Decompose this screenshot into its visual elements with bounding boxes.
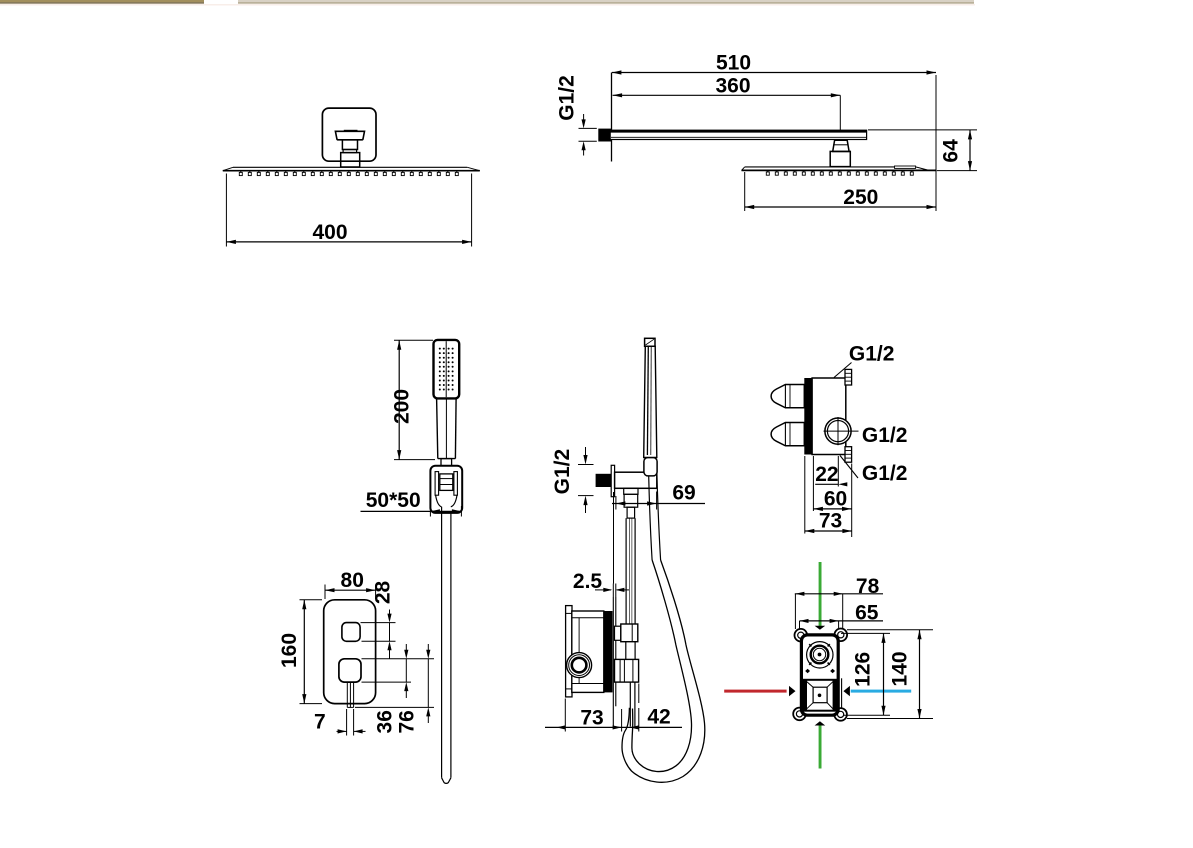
svg-text:G1/2: G1/2 [862, 462, 908, 485]
svg-text:50*50: 50*50 [366, 489, 421, 512]
svg-text:42: 42 [647, 705, 670, 728]
svg-text:80: 80 [341, 569, 364, 592]
svg-text:510: 510 [716, 52, 751, 75]
svg-text:200: 200 [390, 389, 413, 424]
svg-text:160: 160 [278, 633, 301, 668]
svg-text:250: 250 [843, 186, 878, 209]
svg-text:73: 73 [819, 509, 842, 532]
svg-text:73: 73 [580, 707, 603, 730]
svg-text:64: 64 [940, 139, 963, 163]
svg-text:28: 28 [372, 581, 395, 605]
svg-text:G1/2: G1/2 [862, 424, 908, 447]
svg-text:G1/2: G1/2 [556, 75, 579, 121]
svg-text:7: 7 [314, 710, 326, 733]
svg-text:G1/2: G1/2 [849, 343, 895, 366]
svg-text:36: 36 [374, 710, 397, 733]
svg-text:126: 126 [852, 652, 875, 687]
svg-text:G1/2: G1/2 [551, 449, 574, 495]
svg-text:60: 60 [824, 487, 847, 510]
svg-text:360: 360 [715, 74, 750, 97]
svg-text:69: 69 [672, 481, 695, 504]
svg-text:76: 76 [396, 710, 419, 733]
svg-text:400: 400 [312, 221, 347, 244]
svg-text:140: 140 [889, 651, 912, 686]
svg-text:22: 22 [815, 463, 838, 486]
